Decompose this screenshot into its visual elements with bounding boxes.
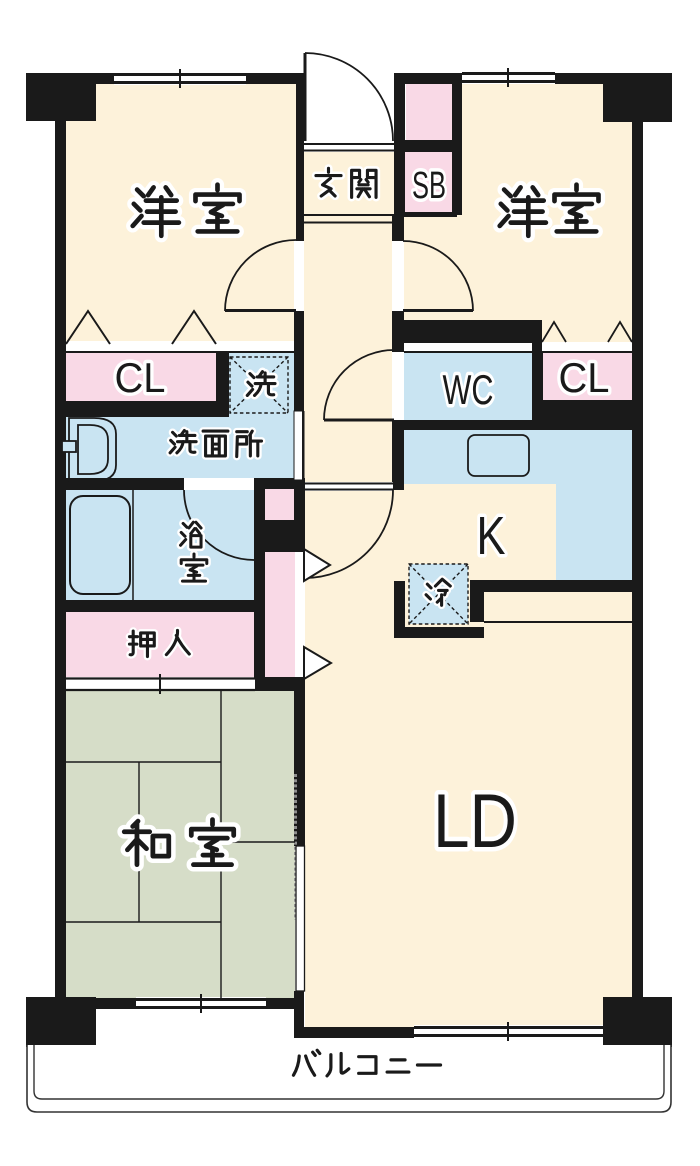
svg-text:K: K [477,506,506,566]
svg-text:CL: CL [115,354,166,401]
svg-text:LD: LD [433,779,517,864]
svg-text:CL: CL [559,354,610,401]
svg-text:WC: WC [443,366,494,413]
svg-text:SB: SB [412,165,446,207]
